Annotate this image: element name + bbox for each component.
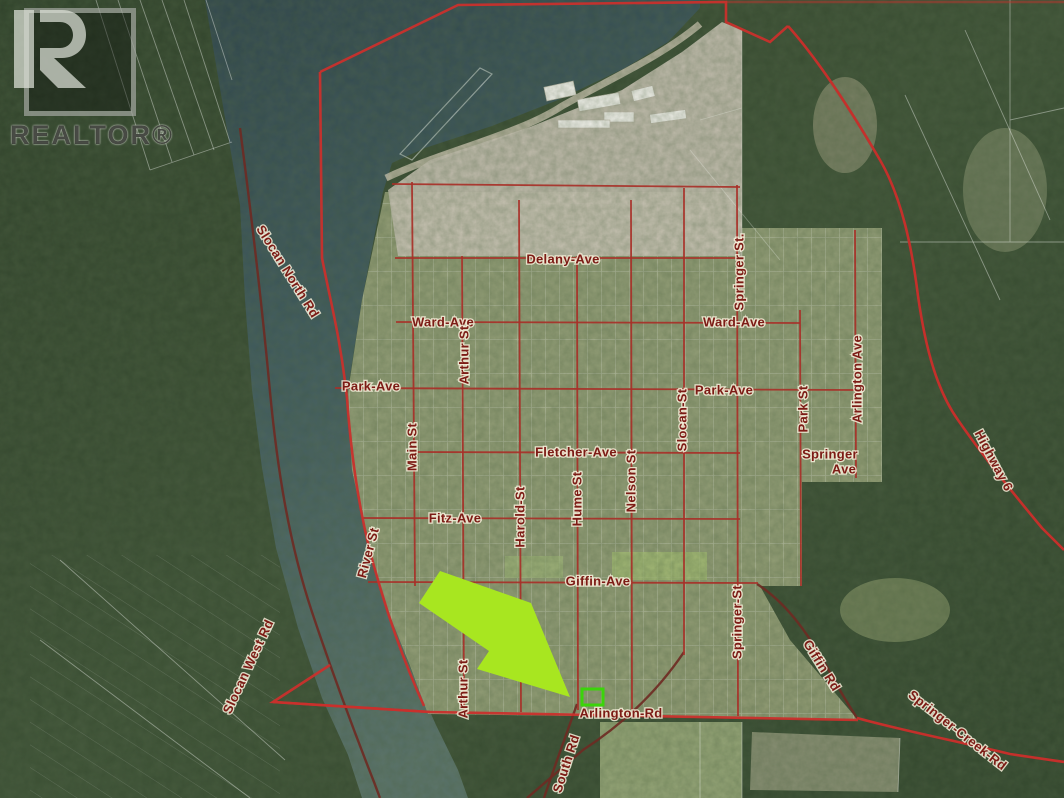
label-arthur-st-s: Arthur St <box>455 659 470 718</box>
label-springer-ave-1: Springer <box>802 446 858 461</box>
realtor-logo: REALTOR® <box>10 8 170 151</box>
label-delany-ave: Delany-Ave <box>526 251 599 266</box>
listing-map: Delany-Ave Ward-Ave Ward-Ave Park-Ave Pa… <box>0 0 1064 798</box>
realtor-logo-text: REALTOR® <box>10 120 170 151</box>
label-springer-st-s: Springer-St <box>729 585 744 659</box>
label-slocan-st: Slocan-St <box>674 388 689 451</box>
label-fitz-ave: Fitz-Ave <box>429 510 481 525</box>
label-ward-ave-e: Ward-Ave <box>703 314 765 329</box>
label-arlington-ave: Arlington Ave <box>849 335 864 423</box>
label-springer-st-n: Springer St. <box>731 233 746 310</box>
label-arlington-rd: Arlington-Rd <box>579 705 662 720</box>
label-nelson-st: Nelson St <box>623 449 638 512</box>
label-park-ave-w: Park-Ave <box>342 378 400 393</box>
label-fletcher-ave: Fletcher-Ave <box>535 444 617 459</box>
label-main-st: Main St <box>404 422 419 471</box>
label-giffin-ave: Giffin-Ave <box>566 573 631 588</box>
label-hume-st: Hume St <box>569 471 584 526</box>
realtor-r-icon <box>24 8 136 116</box>
label-harold-st: Harold-St <box>512 486 527 548</box>
label-park-ave-e: Park-Ave <box>695 382 753 397</box>
giffin-ave-line <box>368 582 758 583</box>
label-arthur-st-n: Arthur St <box>456 325 471 384</box>
park-st-line <box>800 310 801 586</box>
label-park-st: Park St <box>795 385 810 432</box>
fitz-ave-line <box>362 518 740 519</box>
label-springer-ave-2: Ave <box>832 461 856 476</box>
